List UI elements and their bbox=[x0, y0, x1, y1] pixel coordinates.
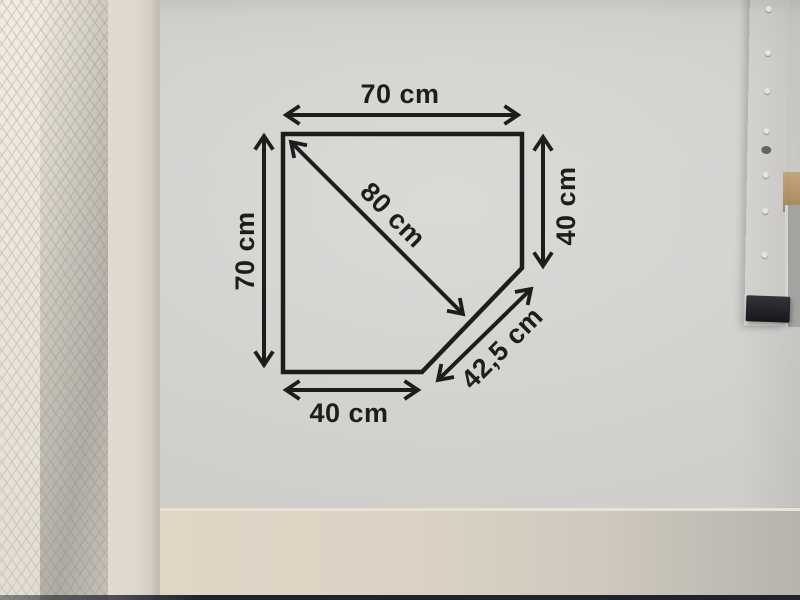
rail-hole bbox=[763, 172, 769, 178]
rail-hole bbox=[761, 252, 767, 258]
rail-slot-hole bbox=[761, 146, 771, 154]
rail-hole bbox=[764, 88, 770, 94]
rail-hole bbox=[762, 208, 768, 214]
rail-hole bbox=[764, 128, 770, 134]
rail-end-cap bbox=[746, 295, 791, 323]
dim-label-top: 70 cm bbox=[360, 79, 439, 109]
dimension-diagram: 70 cm 70 cm 40 cm 40 cm 80 cm 42,5 cm bbox=[200, 58, 610, 450]
dim-label-bottom: 40 cm bbox=[309, 398, 388, 428]
dim-label-right: 40 cm bbox=[551, 166, 581, 245]
metal-rail bbox=[744, 0, 790, 326]
rail-hole bbox=[766, 6, 772, 12]
photo-scene: 70 cm 70 cm 40 cm 40 cm 80 cm 42,5 cm bbox=[0, 0, 800, 600]
rail-hole bbox=[765, 50, 771, 56]
dim-arrow-diagonal bbox=[291, 142, 463, 314]
paper-curled-edge bbox=[108, 0, 160, 600]
wall-shadow-band bbox=[40, 0, 114, 600]
dim-label-left: 70 cm bbox=[230, 211, 260, 290]
bottom-edge-strip bbox=[0, 595, 800, 600]
table-surface bbox=[160, 508, 800, 600]
